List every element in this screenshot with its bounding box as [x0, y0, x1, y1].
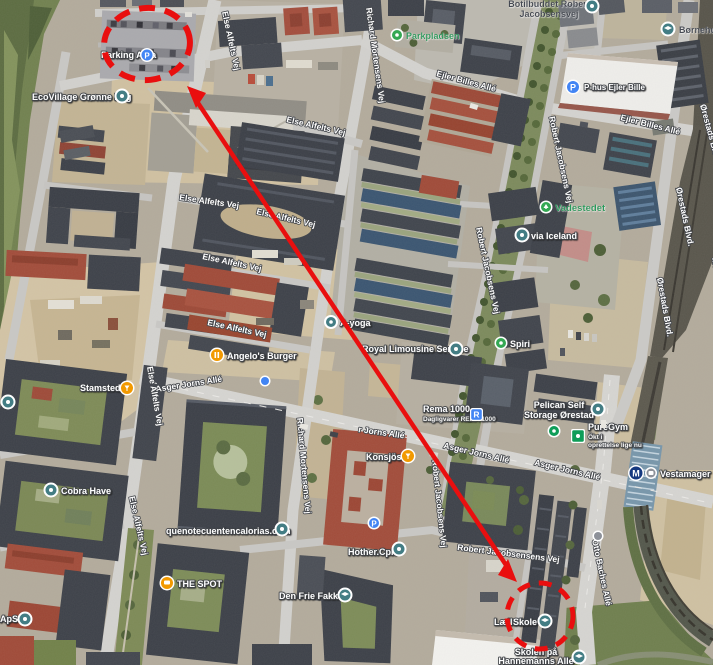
svg-text:Jacobsensvej: Jacobsensvej	[519, 9, 578, 19]
svg-text:THE SPOT: THE SPOT	[177, 579, 223, 589]
svg-text:Storage Ørestad: Storage Ørestad	[524, 410, 594, 420]
svg-text:oprettelse lige nu: oprettelse lige nu	[588, 442, 642, 449]
svg-text:P-hus Ejler Bille: P-hus Ejler Bille	[584, 83, 645, 92]
svg-text:R: R	[473, 410, 479, 420]
svg-text:P: P	[371, 520, 377, 529]
svg-text:Angelo's Burger: Angelo's Burger	[227, 351, 297, 361]
svg-text:Ökt i: Ökt i	[588, 432, 603, 441]
svg-text:Konsjös: Konsjös	[366, 452, 402, 462]
svg-text:quenotecuentencalorias.com: quenotecuentencalorias.com	[166, 526, 291, 536]
svg-text:Dagligvarer REMA 1000: Dagligvarer REMA 1000	[423, 416, 496, 423]
svg-text:P: P	[570, 83, 576, 93]
svg-text:Spiri: Spiri	[510, 339, 530, 349]
svg-text:Vadestedet: Vadestedet	[555, 203, 606, 214]
svg-text:Børnehuse: Børnehuse	[679, 25, 713, 35]
svg-text:P: P	[144, 52, 150, 61]
svg-text:Stamsted: Stamsted	[80, 383, 121, 393]
svg-text:Parkpladsen: Parkpladsen	[406, 31, 460, 41]
svg-text:Den Frie Fakkel: Den Frie Fakkel	[279, 591, 346, 601]
svg-text:Vestamager: Vestamager	[660, 469, 711, 479]
svg-text:Rema 1000: Rema 1000	[423, 404, 470, 414]
svg-text:Botilbuddet Robert: Botilbuddet Robert	[508, 0, 590, 9]
svg-text:PureGym: PureGym	[588, 422, 628, 432]
svg-text:Cobra Have: Cobra Have	[61, 486, 111, 496]
svg-text:Hother.Cph: Hother.Cph	[348, 547, 397, 557]
svg-text:Skole: Skole	[513, 617, 537, 627]
svg-text:M: M	[632, 469, 640, 479]
svg-text:ApS: ApS	[0, 614, 18, 624]
svg-text:Hannemanns Allé: Hannemanns Allé	[498, 656, 573, 665]
svg-text:via Iceland: via Iceland	[531, 231, 577, 241]
svg-text:Pelican Self: Pelican Self	[534, 400, 586, 410]
